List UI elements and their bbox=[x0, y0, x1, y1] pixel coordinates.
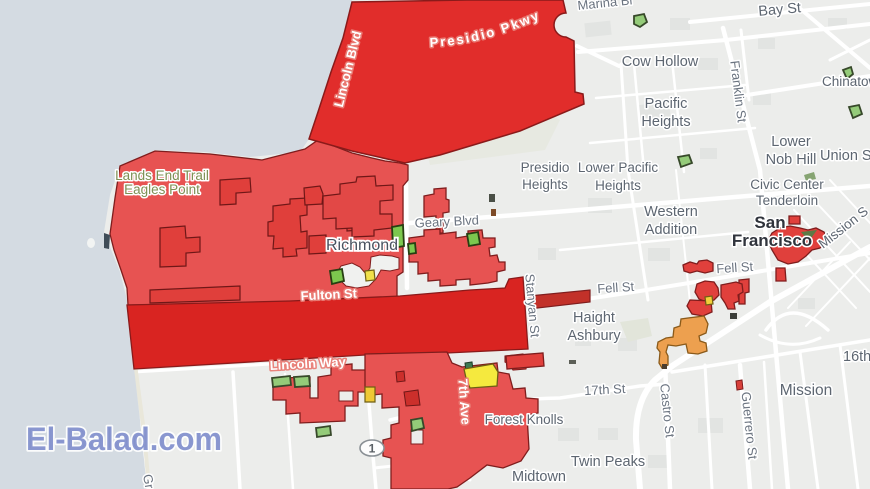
svg-text:Lands End Trail: Lands End Trail bbox=[115, 168, 209, 183]
svg-text:Ashbury: Ashbury bbox=[567, 328, 621, 344]
svg-text:Heights: Heights bbox=[522, 177, 568, 192]
svg-text:Heights: Heights bbox=[595, 178, 641, 193]
svg-text:Twin Peaks: Twin Peaks bbox=[571, 454, 645, 470]
svg-text:Civic Center: Civic Center bbox=[750, 177, 824, 192]
svg-text:Forest Knolls: Forest Knolls bbox=[485, 412, 564, 427]
svg-text:1: 1 bbox=[369, 442, 376, 456]
svg-text:16th: 16th bbox=[843, 349, 870, 365]
svg-text:Fulton St: Fulton St bbox=[300, 286, 358, 304]
svg-text:Heights: Heights bbox=[641, 114, 690, 130]
svg-text:Cow Hollow: Cow Hollow bbox=[622, 54, 699, 70]
svg-text:Tenderloin: Tenderloin bbox=[756, 193, 818, 208]
svg-text:San: San bbox=[754, 213, 785, 232]
svg-text:Nob Hill: Nob Hill bbox=[766, 152, 817, 168]
svg-text:Francisco: Francisco bbox=[732, 231, 812, 250]
svg-text:Richmond: Richmond bbox=[326, 237, 398, 254]
svg-text:Addition: Addition bbox=[645, 222, 697, 238]
svg-text:7th Ave: 7th Ave bbox=[455, 378, 473, 425]
svg-text:Haight: Haight bbox=[573, 310, 615, 326]
svg-text:Midtown: Midtown bbox=[512, 469, 566, 485]
svg-text:17th St: 17th St bbox=[584, 381, 626, 398]
svg-text:Gre: Gre bbox=[140, 473, 159, 489]
svg-text:Union S: Union S bbox=[820, 148, 870, 164]
svg-text:Fell St: Fell St bbox=[597, 279, 635, 297]
svg-text:Chinatow: Chinatow bbox=[822, 74, 870, 89]
svg-text:Presidio: Presidio bbox=[521, 160, 570, 175]
svg-text:Western: Western bbox=[644, 204, 698, 220]
svg-text:El-Balad.com: El-Balad.com bbox=[26, 421, 222, 457]
svg-text:Pacific: Pacific bbox=[645, 96, 688, 112]
svg-text:Lower: Lower bbox=[771, 134, 811, 150]
svg-text:Mission: Mission bbox=[780, 382, 833, 399]
svg-text:Lower Pacific: Lower Pacific bbox=[578, 160, 659, 175]
svg-text:Eagles Point: Eagles Point bbox=[124, 182, 200, 197]
svg-text:Fell St: Fell St bbox=[716, 259, 754, 277]
